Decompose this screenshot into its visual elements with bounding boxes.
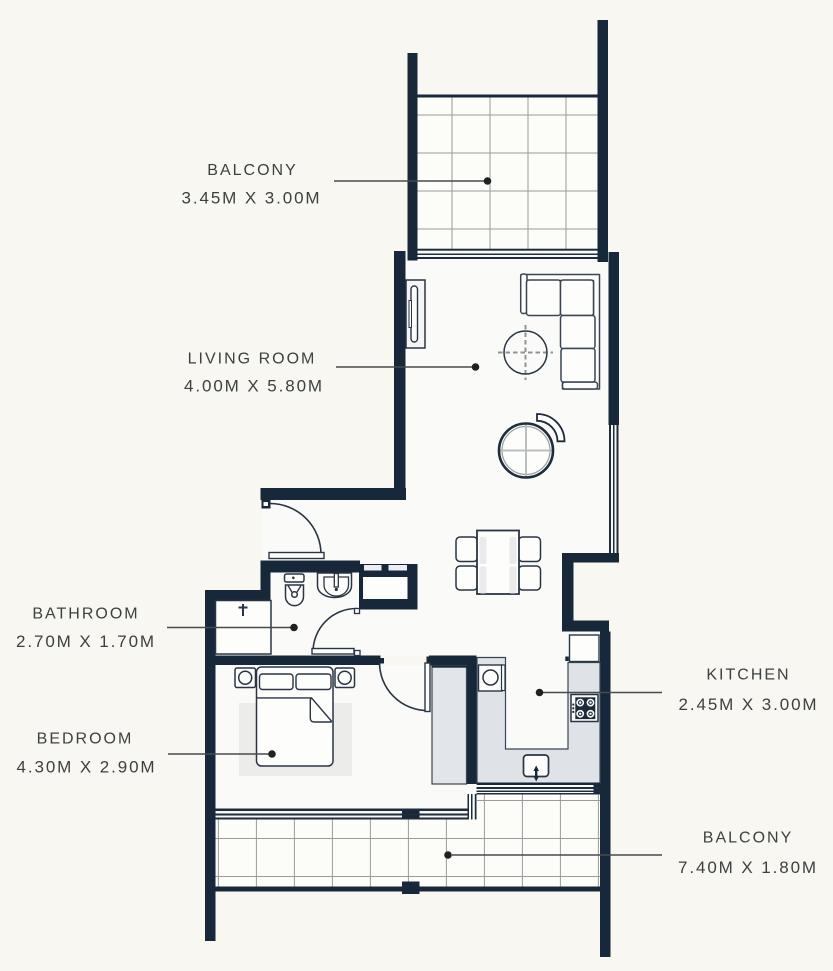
svg-text:4.00M X 5.80M: 4.00M X 5.80M (184, 377, 324, 396)
svg-text:2.45M X 3.00M: 2.45M X 3.00M (679, 695, 819, 714)
svg-text:BALCONY: BALCONY (207, 162, 297, 179)
svg-text:LIVING ROOM: LIVING ROOM (188, 351, 317, 368)
svg-text:3.45M X 3.00M: 3.45M X 3.00M (182, 189, 322, 208)
svg-text:7.40M X 1.80M: 7.40M X 1.80M (678, 858, 818, 877)
svg-text:2.70M X 1.70M: 2.70M X 1.70M (16, 632, 156, 651)
svg-text:4.30M X 2.90M: 4.30M X 2.90M (17, 758, 157, 777)
svg-text:KITCHEN: KITCHEN (706, 667, 790, 684)
svg-text:BEDROOM: BEDROOM (37, 731, 134, 748)
svg-text:BATHROOM: BATHROOM (32, 606, 139, 623)
svg-text:BALCONY: BALCONY (703, 830, 793, 847)
